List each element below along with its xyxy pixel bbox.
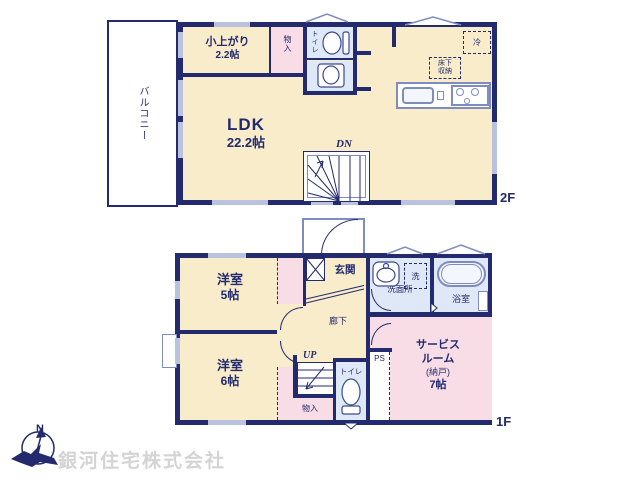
window-mark xyxy=(208,420,246,425)
koagari-label: 小上がり 2.2帖 xyxy=(185,36,270,62)
bay-window-icon xyxy=(305,13,349,23)
wall-segment xyxy=(366,348,392,352)
bay-window-icon xyxy=(386,246,424,255)
window-mark xyxy=(212,200,268,205)
wall-segment xyxy=(366,312,492,317)
toilet-1f-label: トイレ xyxy=(336,367,366,376)
vent-mark-icon xyxy=(343,422,359,430)
company-name: 銀河住宅株式会社 xyxy=(58,446,226,473)
window-mark xyxy=(178,32,183,58)
window-mark xyxy=(175,281,180,299)
stairs-up-label: UP xyxy=(303,350,316,363)
stairs-down-label: DN xyxy=(336,138,352,152)
washer-box: 洗 xyxy=(404,263,427,289)
wall-segment xyxy=(303,91,357,95)
pipe-space: PS xyxy=(370,352,390,420)
window-mark xyxy=(178,80,183,116)
floor-2-tag: 2F xyxy=(500,190,515,206)
bird-logo-icon xyxy=(11,444,58,467)
pipe-space-label: PS xyxy=(370,354,389,364)
window-mark xyxy=(175,338,180,364)
underfloor-storage-box: 床下 収納 xyxy=(429,57,461,79)
wall-segment xyxy=(303,27,307,95)
fridge-box: 冷 xyxy=(463,31,491,54)
burner-icon xyxy=(471,88,479,96)
wall-segment xyxy=(357,51,371,55)
faucet-icon xyxy=(437,91,444,100)
bay-window-icon xyxy=(436,244,486,255)
storage-2f-label: 物入 xyxy=(282,35,293,53)
floor-plan-page: バルコニー 物入 トイレ xyxy=(0,0,640,480)
hallway-label: 廊下 xyxy=(318,316,358,327)
wash-basin-icon xyxy=(371,258,401,288)
entrance-label: 玄関 xyxy=(322,264,368,277)
wash-basin-icon xyxy=(316,62,346,89)
balcony-label: バルコニー xyxy=(135,86,150,141)
wall-segment xyxy=(307,58,353,60)
closet-room5 xyxy=(277,258,304,304)
window-mark xyxy=(214,22,250,27)
storage-2f: 物入 xyxy=(271,27,303,73)
wall-segment xyxy=(366,258,370,423)
window-mark xyxy=(492,122,497,174)
balcony: バルコニー xyxy=(107,20,178,207)
wall-segment xyxy=(392,27,396,47)
compass-north-label: N xyxy=(36,423,44,435)
toilet-icon xyxy=(339,378,363,416)
bathroom-label: 浴室 xyxy=(440,294,482,305)
bath-shelf-icon xyxy=(478,291,488,311)
room6-label: 洋室 6帖 xyxy=(183,358,277,389)
toilet-icon xyxy=(320,28,352,58)
toilet-2f-label: トイレ xyxy=(309,30,319,54)
service-room-label: サービス ルーム (納戸) 7帖 xyxy=(396,338,480,393)
burner-icon xyxy=(464,98,470,104)
bay-window-icon xyxy=(404,16,462,26)
wall-segment xyxy=(357,87,371,91)
bathtub-inner xyxy=(441,264,482,284)
room5-label: 洋室 5帖 xyxy=(183,272,277,303)
window-mark xyxy=(178,122,183,158)
wall-segment xyxy=(353,27,357,95)
window-mark xyxy=(401,200,455,205)
floor-1-tag: 1F xyxy=(496,414,511,430)
compass-icon: N xyxy=(10,420,62,474)
storage-1f-label: 物入 xyxy=(288,404,332,414)
wall-segment xyxy=(333,358,369,362)
wall-segment xyxy=(180,330,277,334)
wall-segment xyxy=(183,73,305,77)
ldk-label: LDK 22.2帖 xyxy=(193,114,299,152)
kitchen-sink-icon xyxy=(402,87,434,104)
bath-door-icon xyxy=(430,302,439,314)
stairs-up xyxy=(297,362,334,395)
burner-icon xyxy=(456,88,464,96)
entrance-step-lines xyxy=(306,285,366,305)
stairs-down xyxy=(303,151,370,202)
window-mark xyxy=(208,253,246,258)
